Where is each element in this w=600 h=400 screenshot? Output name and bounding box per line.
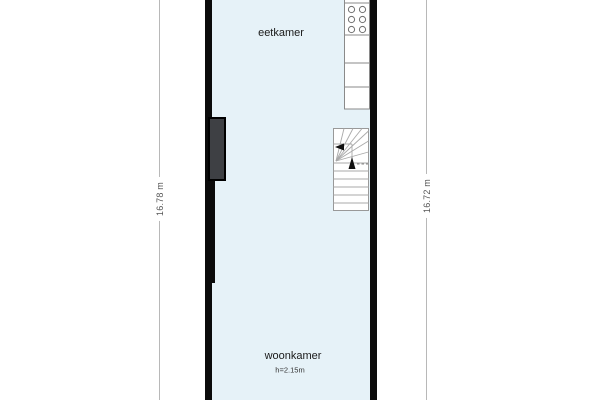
ceiling-height-label: h=2.15m (275, 366, 304, 375)
room-label-eetkamer: eetkamer (258, 27, 304, 39)
staircase (334, 129, 369, 211)
kitchen-counter (345, 0, 370, 109)
floor-plan-canvas: { "rooms": { "dining": { "label": "eetka… (0, 0, 600, 400)
dimension-label-right: 16.72 m (420, 174, 434, 218)
dimension-label-left: 16.78 m (153, 177, 167, 221)
room-label-woonkamer: woonkamer (265, 350, 322, 362)
fixtures-layer (0, 0, 600, 400)
